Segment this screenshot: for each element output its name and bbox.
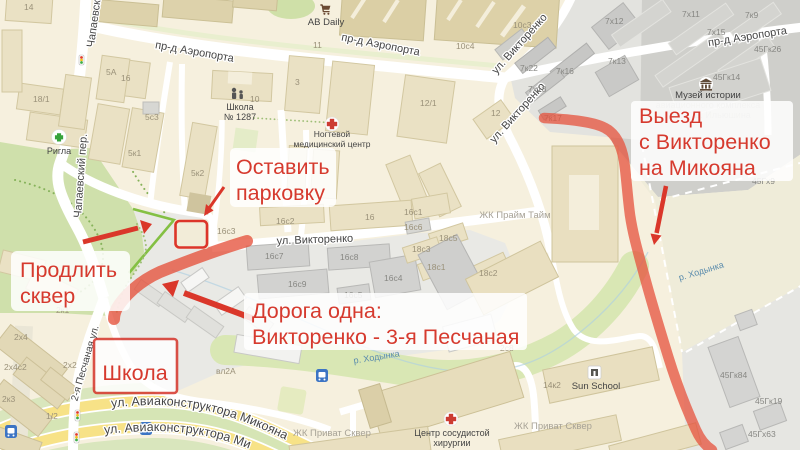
- svg-text:медицинский центр: медицинский центр: [293, 139, 370, 149]
- svg-text:2к3: 2к3: [2, 394, 15, 404]
- svg-text:16: 16: [365, 212, 375, 222]
- svg-text:45Гк14: 45Гк14: [713, 72, 741, 82]
- svg-text:16: 16: [121, 73, 131, 83]
- svg-text:хирургии: хирургии: [433, 438, 470, 448]
- svg-text:5к1: 5к1: [128, 148, 141, 158]
- svg-text:5А: 5А: [106, 67, 117, 77]
- svg-text:Продлить: Продлить: [20, 258, 117, 282]
- svg-text:16с9: 16с9: [288, 279, 307, 289]
- svg-text:1/2: 1/2: [46, 411, 58, 421]
- svg-text:7х15: 7х15: [707, 27, 726, 37]
- svg-text:сквер: сквер: [20, 284, 75, 308]
- svg-text:18с5: 18с5: [439, 233, 458, 243]
- svg-text:16с3: 16с3: [217, 226, 236, 236]
- svg-text:16с1: 16с1: [404, 207, 423, 217]
- svg-text:парковку: парковку: [236, 181, 325, 205]
- svg-text:12/1: 12/1: [420, 98, 437, 108]
- svg-text:7х11: 7х11: [682, 9, 700, 19]
- svg-text:3: 3: [295, 77, 300, 87]
- svg-text:7к22: 7к22: [520, 63, 538, 73]
- svg-text:7к9: 7к9: [745, 10, 758, 20]
- svg-text:16с4: 16с4: [384, 273, 403, 283]
- svg-text:5с3: 5с3: [145, 112, 159, 122]
- svg-text:2х4с2: 2х4с2: [4, 362, 27, 372]
- svg-text:AB Daily: AB Daily: [308, 17, 345, 28]
- svg-text:18с2: 18с2: [479, 268, 498, 278]
- svg-text:Оставить: Оставить: [236, 155, 330, 179]
- svg-text:14к2: 14к2: [543, 380, 561, 390]
- svg-text:45Гк84: 45Гк84: [720, 370, 748, 380]
- svg-text:7х18: 7х18: [528, 84, 547, 94]
- svg-text:45Гк19: 45Гк19: [755, 396, 783, 406]
- svg-text:16с2: 16с2: [276, 216, 295, 226]
- svg-text:ЖК Приват Сквер: ЖК Приват Сквер: [514, 421, 592, 432]
- svg-text:Дорога одна:: Дорога одна:: [252, 299, 382, 323]
- svg-text:45Гк26: 45Гк26: [754, 44, 782, 54]
- svg-text:вл2А: вл2А: [216, 366, 236, 376]
- svg-text:ЖК Прайм Тайм: ЖК Прайм Тайм: [479, 210, 550, 221]
- svg-text:Ногтевой: Ногтевой: [314, 129, 351, 139]
- svg-text:с Викторенко: с Викторенко: [639, 130, 771, 154]
- svg-text:Викторенко - 3-я Песчаная: Викторенко - 3-я Песчаная: [252, 325, 519, 349]
- svg-text:Ригла: Ригла: [47, 146, 71, 156]
- svg-text:№ 1287: № 1287: [224, 112, 256, 122]
- svg-text:10с4: 10с4: [456, 41, 475, 51]
- svg-text:18с3: 18с3: [412, 244, 431, 254]
- svg-text:18с1: 18с1: [427, 262, 446, 272]
- svg-text:7к13: 7к13: [608, 56, 626, 66]
- svg-text:Школа: Школа: [102, 361, 167, 385]
- svg-text:12: 12: [491, 108, 501, 118]
- svg-text:7х12: 7х12: [605, 16, 624, 26]
- svg-text:11: 11: [313, 40, 322, 50]
- svg-text:10: 10: [250, 94, 260, 104]
- svg-text:7к16: 7к16: [556, 66, 574, 76]
- svg-text:16с7: 16с7: [265, 251, 284, 261]
- svg-text:16с8: 16с8: [340, 252, 359, 262]
- svg-text:ЖК Приват Сквер: ЖК Приват Сквер: [293, 428, 371, 439]
- svg-text:Выезд: Выезд: [639, 104, 703, 128]
- svg-text:на Микояна: на Микояна: [639, 156, 756, 180]
- svg-text:16с6: 16с6: [404, 222, 423, 232]
- svg-text:45Гх63: 45Гх63: [748, 429, 776, 439]
- svg-text:10с3: 10с3: [513, 20, 532, 30]
- svg-text:18/1: 18/1: [33, 94, 50, 104]
- svg-text:2х2: 2х2: [63, 360, 77, 370]
- svg-text:14: 14: [24, 2, 34, 12]
- svg-text:Центр сосудистой: Центр сосудистой: [414, 428, 489, 438]
- svg-text:2х4: 2х4: [14, 332, 28, 342]
- svg-text:Sun School: Sun School: [572, 381, 621, 392]
- svg-text:5к2: 5к2: [191, 168, 204, 178]
